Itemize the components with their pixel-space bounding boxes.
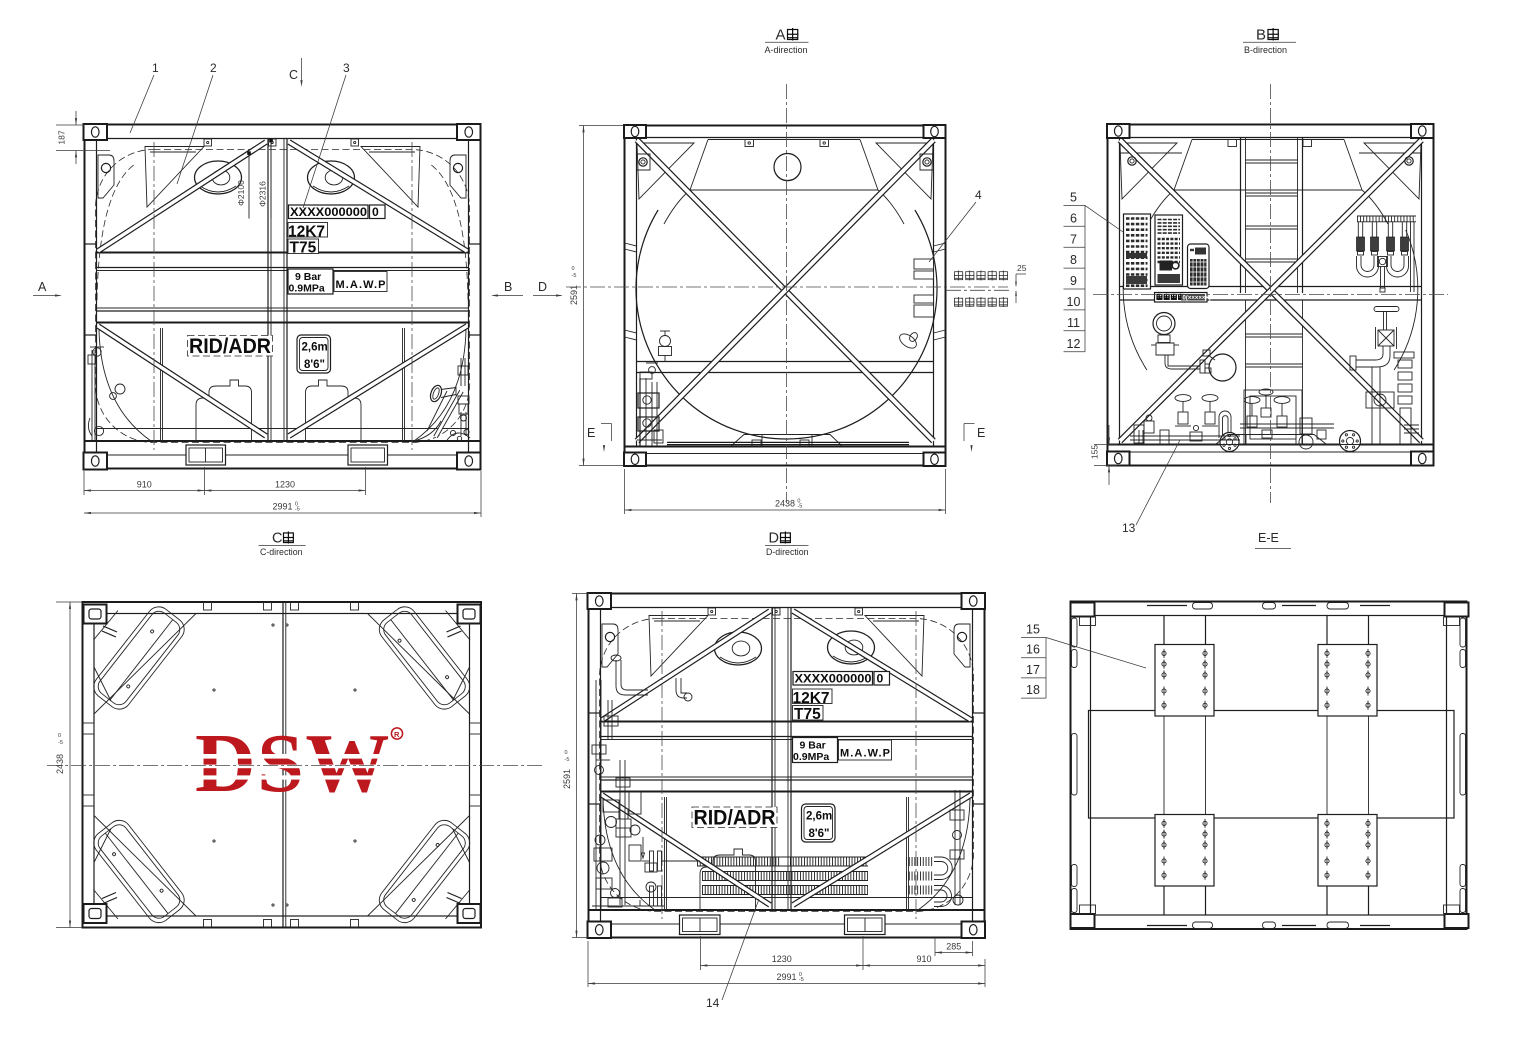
svg-text:13: 13 — [1122, 521, 1136, 535]
svg-text:1230: 1230 — [772, 954, 792, 964]
svg-text:14: 14 — [706, 996, 720, 1010]
svg-text:-5: -5 — [797, 504, 802, 510]
svg-text:910: 910 — [916, 954, 931, 964]
svg-text:R: R — [394, 730, 400, 739]
svg-text:2438: 2438 — [775, 499, 795, 509]
svg-text:0.9MPa: 0.9MPa — [793, 751, 829, 763]
svg-text:187: 187 — [57, 130, 67, 144]
svg-text:A: A — [776, 27, 786, 44]
svg-text:-5: -5 — [565, 757, 570, 763]
svg-text:2591: 2591 — [562, 769, 572, 789]
svg-text:C: C — [289, 68, 298, 82]
svg-text:9 Bar: 9 Bar — [295, 271, 321, 283]
svg-text:B: B — [504, 280, 512, 294]
svg-text:C: C — [272, 531, 282, 547]
svg-text:9: 9 — [1070, 274, 1077, 288]
svg-text:C-direction: C-direction — [260, 547, 303, 557]
svg-text:11: 11 — [1067, 316, 1080, 330]
svg-text:15: 15 — [1026, 623, 1040, 637]
svg-text:8: 8 — [1070, 253, 1077, 267]
svg-text:0(××××××): 0(××××××) — [1183, 296, 1211, 302]
svg-text:2: 2 — [210, 61, 217, 75]
svg-text:6: 6 — [1070, 211, 1077, 225]
svg-text:0: 0 — [372, 205, 379, 219]
svg-text:2591: 2591 — [569, 285, 579, 305]
svg-text:2438: 2438 — [55, 754, 65, 774]
svg-text:M.A.W.P: M.A.W.P — [840, 748, 890, 760]
svg-text:17: 17 — [1026, 663, 1040, 677]
svg-text:-5: -5 — [58, 740, 63, 746]
svg-text:2,6m: 2,6m — [302, 342, 328, 354]
svg-text:M.A.W.P: M.A.W.P — [336, 279, 386, 291]
svg-text:12K7: 12K7 — [793, 690, 830, 707]
svg-text:910: 910 — [137, 480, 152, 490]
svg-text:9 Bar: 9 Bar — [800, 740, 826, 752]
svg-text:-5: -5 — [295, 507, 300, 513]
svg-text:8'6": 8'6" — [809, 828, 830, 840]
svg-text:D: D — [538, 280, 547, 294]
svg-text:12: 12 — [1067, 337, 1081, 351]
svg-text:RID/ADR: RID/ADR — [694, 806, 776, 830]
svg-text:B-direction: B-direction — [1244, 45, 1287, 55]
svg-text:0: 0 — [877, 672, 884, 686]
svg-text:T75: T75 — [794, 706, 821, 723]
svg-text:25: 25 — [1017, 263, 1027, 273]
svg-text:Φ2100: Φ2100 — [236, 180, 246, 206]
svg-text:155: 155 — [1090, 445, 1100, 459]
svg-text:A: A — [38, 280, 47, 294]
svg-text:DSW: DSW — [195, 717, 391, 810]
svg-text:XXXX000000: XXXX000000 — [795, 672, 872, 686]
svg-text:2991: 2991 — [272, 502, 292, 512]
svg-text:A-direction: A-direction — [765, 45, 808, 55]
svg-text:18: 18 — [1026, 683, 1040, 697]
svg-text:7: 7 — [1070, 232, 1077, 246]
svg-text:D-direction: D-direction — [766, 547, 809, 557]
svg-text:0: 0 — [58, 733, 61, 739]
svg-text:2,6m: 2,6m — [806, 811, 832, 823]
svg-text:RID/ADR: RID/ADR — [189, 334, 271, 358]
svg-text:D: D — [769, 531, 779, 547]
svg-text:1230: 1230 — [275, 480, 295, 490]
svg-text:-5: -5 — [572, 273, 577, 279]
svg-text:4: 4 — [975, 188, 982, 202]
svg-text:0: 0 — [572, 266, 575, 272]
svg-text:0: 0 — [565, 750, 568, 756]
svg-text:XXXX000000: XXXX000000 — [290, 205, 367, 219]
svg-text:10: 10 — [1067, 295, 1081, 309]
svg-text:8'6": 8'6" — [304, 359, 325, 371]
svg-text:12K7: 12K7 — [288, 224, 325, 241]
svg-text:3: 3 — [343, 61, 350, 75]
svg-text:1: 1 — [152, 61, 159, 75]
svg-text:0.9MPa: 0.9MPa — [289, 283, 325, 295]
svg-text:B: B — [1256, 27, 1266, 44]
svg-text:Φ2316: Φ2316 — [258, 181, 268, 207]
svg-text:T75: T75 — [290, 240, 317, 257]
svg-text:-5: -5 — [799, 977, 804, 983]
svg-text:285: 285 — [946, 942, 961, 952]
svg-text:E: E — [587, 426, 595, 440]
svg-text:2991: 2991 — [776, 972, 796, 982]
svg-text:E-E: E-E — [1258, 531, 1279, 545]
svg-text:16: 16 — [1026, 643, 1040, 657]
svg-text:5: 5 — [1070, 191, 1077, 205]
svg-text:E: E — [977, 426, 985, 440]
